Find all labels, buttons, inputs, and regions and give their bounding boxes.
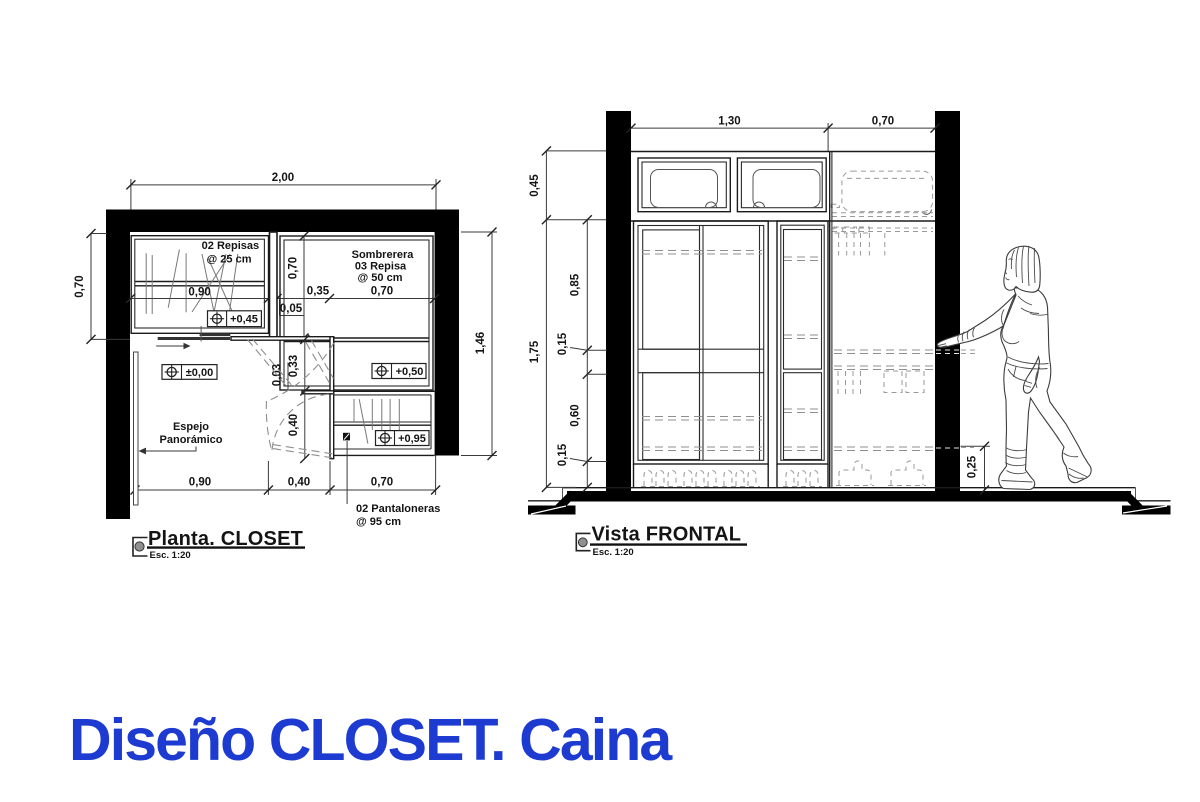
svg-text:0,85: 0,85 [570,273,582,296]
svg-text:1,75: 1,75 [529,340,541,363]
svg-text:0,05: 0,05 [280,303,303,315]
svg-text:0,90: 0,90 [188,287,210,299]
svg-text:0,60: 0,60 [570,404,582,426]
svg-text:0,33: 0,33 [288,355,300,377]
svg-text:@ 25 cm: @ 25 cm [207,253,252,265]
svg-text:0,15: 0,15 [557,443,569,466]
svg-text:0,70: 0,70 [872,116,894,128]
svg-text:0,70: 0,70 [74,275,86,297]
svg-text:0,40: 0,40 [288,477,310,489]
svg-text:0,35: 0,35 [307,286,330,298]
svg-text:1,46: 1,46 [475,332,487,354]
svg-text:0,70: 0,70 [371,477,393,489]
svg-text:Vista FRONTAL: Vista FRONTAL [592,524,742,546]
svg-text:@ 95 cm: @ 95 cm [356,516,401,528]
svg-text:2,00: 2,00 [272,172,294,184]
svg-text:Sombrerera: Sombrerera [352,249,415,261]
svg-text:+0,50: +0,50 [396,366,424,378]
svg-text:0,25: 0,25 [967,455,979,478]
svg-text:0,70: 0,70 [288,257,300,279]
svg-text:Diseño CLOSET. Caina: Diseño CLOSET. Caina [69,707,673,773]
svg-text:0,70: 0,70 [371,286,393,298]
svg-text:02 Repisas: 02 Repisas [202,240,259,252]
svg-text:Espejo: Espejo [173,421,209,433]
svg-text:03 Repisa: 03 Repisa [355,261,407,273]
svg-text:+0,95: +0,95 [398,433,426,445]
svg-text:+0,45: +0,45 [230,314,258,326]
svg-text:0,15: 0,15 [557,332,569,355]
svg-text:0,45: 0,45 [529,174,541,197]
svg-text:Panorámico: Panorámico [160,434,223,446]
svg-text:02 Pantaloneras: 02 Pantaloneras [356,503,440,515]
svg-text:Esc. 1:20: Esc. 1:20 [593,547,634,558]
svg-text:@ 50 cm: @ 50 cm [358,272,403,284]
svg-text:Esc. 1:20: Esc. 1:20 [150,550,191,561]
svg-text:0,40: 0,40 [288,414,300,436]
svg-text:1,30: 1,30 [718,116,740,128]
svg-text:±0,00: ±0,00 [186,367,213,379]
svg-text:0,90: 0,90 [189,477,211,489]
